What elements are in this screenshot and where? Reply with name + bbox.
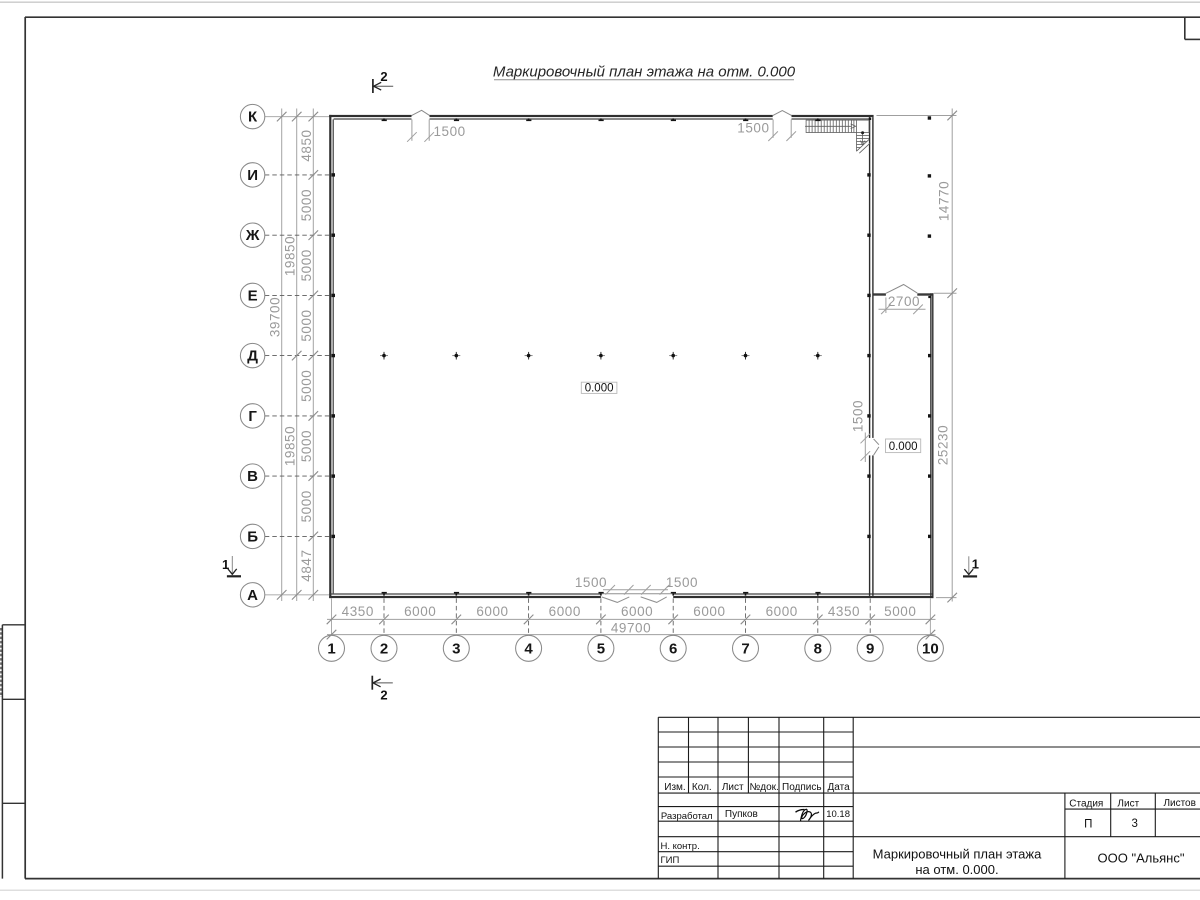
svg-text:№док.: №док. <box>750 782 779 793</box>
svg-text:5000: 5000 <box>884 604 916 619</box>
svg-text:2700: 2700 <box>888 294 920 309</box>
svg-text:6000: 6000 <box>549 604 581 619</box>
svg-text:Маркировочный план этажа на от: Маркировочный план этажа на отм. 0.000 <box>493 64 796 81</box>
svg-text:1500: 1500 <box>850 400 865 432</box>
svg-text:25230: 25230 <box>936 425 951 465</box>
svg-text:6000: 6000 <box>621 604 653 619</box>
svg-text:Ж: Ж <box>245 227 260 244</box>
svg-text:на отм. 0.000.: на отм. 0.000. <box>915 862 998 877</box>
svg-text:4: 4 <box>524 640 533 657</box>
svg-text:10.18: 10.18 <box>826 809 850 820</box>
svg-text:2: 2 <box>380 69 387 84</box>
svg-text:1500: 1500 <box>666 575 698 590</box>
svg-text:Кол.: Кол. <box>692 782 712 793</box>
svg-text:Г: Г <box>248 408 257 425</box>
svg-text:1500: 1500 <box>575 575 607 590</box>
svg-text:Б: Б <box>247 528 258 545</box>
svg-text:10: 10 <box>922 640 939 657</box>
svg-text:5000: 5000 <box>299 430 314 462</box>
svg-text:4847: 4847 <box>299 549 314 581</box>
svg-text:6000: 6000 <box>693 604 725 619</box>
svg-text:Е: Е <box>248 287 258 304</box>
svg-text:14770: 14770 <box>937 181 952 221</box>
svg-text:6000: 6000 <box>476 604 508 619</box>
svg-text:Стадия: Стадия <box>1069 798 1103 809</box>
svg-text:49700: 49700 <box>611 620 651 635</box>
svg-text:Д: Д <box>247 348 258 365</box>
svg-text:9: 9 <box>866 640 874 657</box>
svg-text:Листов: Листов <box>1163 798 1196 809</box>
svg-text:Лист: Лист <box>1117 799 1139 810</box>
svg-text:1: 1 <box>222 557 229 572</box>
svg-text:В: В <box>247 468 258 485</box>
svg-text:4350: 4350 <box>828 604 860 619</box>
svg-text:К: К <box>248 109 258 126</box>
svg-text:5000: 5000 <box>299 309 314 341</box>
svg-text:И: И <box>247 167 258 184</box>
svg-text:ООО "Альянс": ООО "Альянс" <box>1098 850 1185 865</box>
svg-text:3: 3 <box>1131 818 1137 830</box>
svg-text:5000: 5000 <box>299 370 314 402</box>
svg-text:19850: 19850 <box>283 236 298 276</box>
svg-text:1: 1 <box>972 556 979 571</box>
svg-text:3: 3 <box>452 640 460 657</box>
svg-text:5: 5 <box>597 640 605 657</box>
svg-text:39700: 39700 <box>267 297 282 337</box>
svg-text:1500: 1500 <box>434 124 466 139</box>
svg-text:5000: 5000 <box>299 249 314 281</box>
svg-text:6000: 6000 <box>404 604 436 619</box>
svg-text:ГИП: ГИП <box>661 855 680 866</box>
svg-text:Маркировочный план этажа: Маркировочный план этажа <box>873 846 1042 861</box>
svg-text:Изм.: Изм. <box>664 782 685 793</box>
svg-text:А: А <box>247 587 258 604</box>
svg-text:8: 8 <box>814 640 822 657</box>
svg-text:Пупков: Пупков <box>725 809 758 820</box>
svg-text:0.000: 0.000 <box>889 441 918 453</box>
svg-text:4350: 4350 <box>342 604 374 619</box>
svg-text:6: 6 <box>669 640 677 657</box>
svg-text:П: П <box>1084 818 1092 830</box>
svg-text:5000: 5000 <box>299 189 314 221</box>
svg-text:6000: 6000 <box>766 604 798 619</box>
svg-text:5000: 5000 <box>299 490 314 522</box>
svg-text:0.000: 0.000 <box>585 383 614 395</box>
svg-text:Подпись: Подпись <box>782 782 822 793</box>
svg-text:7: 7 <box>741 640 749 657</box>
svg-text:1: 1 <box>327 640 335 657</box>
svg-text:1500: 1500 <box>737 120 769 135</box>
svg-text:4850: 4850 <box>299 129 314 161</box>
svg-text:Н. контр.: Н. контр. <box>661 841 700 852</box>
svg-text:Лист: Лист <box>722 782 744 793</box>
svg-text:2: 2 <box>380 640 388 657</box>
svg-text:Дата: Дата <box>828 782 851 793</box>
svg-text:2: 2 <box>380 688 387 703</box>
svg-text:19850: 19850 <box>283 426 298 466</box>
svg-text:Разработал: Разработал <box>661 811 713 822</box>
